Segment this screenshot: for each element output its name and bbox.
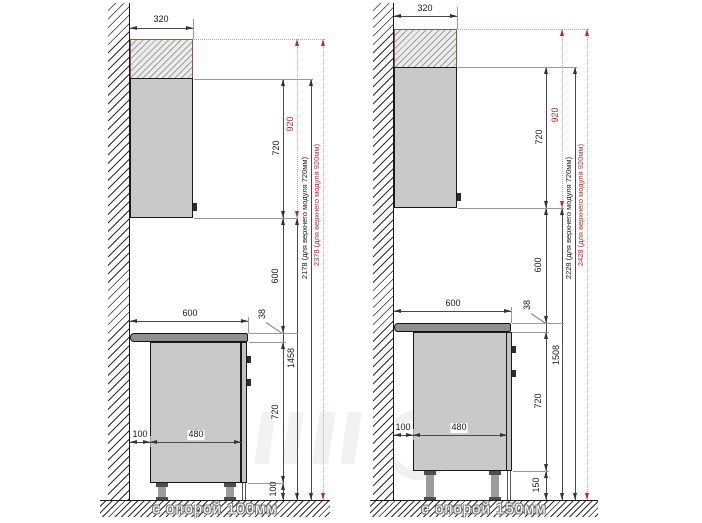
ext-line	[457, 7, 458, 29]
base-cabinet-body	[150, 342, 241, 483]
dim-back-gap: 100	[131, 430, 148, 440]
door-bottom-edge	[242, 483, 246, 500]
dim-wall-gap: 600	[534, 256, 544, 273]
base-cabinet-door	[241, 342, 247, 483]
upper-cabinet-handle	[193, 203, 197, 211]
arrow	[544, 316, 548, 323]
dim-line-alt	[562, 29, 563, 208]
ext-line	[512, 332, 549, 333]
arrow	[130, 440, 137, 444]
ext-line	[194, 79, 313, 80]
wall-hatch	[108, 3, 130, 500]
dim-line	[546, 208, 547, 323]
dim-base-depth: 480	[187, 430, 204, 440]
floor-label: с опорой 100мм	[152, 501, 277, 518]
ext-line	[193, 19, 194, 39]
dim-upper-height: 720	[272, 139, 282, 156]
arrow	[585, 29, 589, 36]
drawer-knob	[247, 379, 251, 386]
arrow	[281, 483, 285, 490]
dim-floor-to-upper: 1458	[287, 347, 297, 369]
arrow	[143, 440, 150, 444]
leader-line	[266, 322, 282, 333]
dim-base-height: 720	[534, 392, 544, 409]
dim-line-upper-depth	[394, 16, 457, 17]
arrow	[560, 29, 564, 36]
dim-countertop-thickness: 38	[523, 299, 533, 311]
dim-upper-height-alt: 920	[551, 106, 561, 123]
arrow	[406, 433, 413, 437]
arrow	[413, 433, 420, 437]
cabinet-leg-front	[489, 471, 501, 500]
ext-line	[248, 483, 284, 484]
dim-line	[562, 208, 563, 500]
arrow	[394, 14, 401, 18]
arrow	[321, 493, 325, 500]
arrow	[560, 493, 564, 500]
dim-base-depth: 480	[450, 423, 467, 433]
dim-total-alt: 2378 (для верхнего модуля 920мм)	[313, 143, 321, 267]
floor-label: с опорой 150мм	[421, 501, 546, 518]
dim-line	[546, 323, 547, 332]
dim-line-total	[575, 67, 576, 500]
cabinet-leg-back	[156, 483, 168, 500]
arrow	[500, 433, 507, 437]
arrow	[544, 332, 548, 339]
cabinet-leg-back	[424, 471, 436, 500]
arrow	[295, 211, 299, 218]
dim-line-total-alt	[323, 39, 324, 500]
ext-line-red	[194, 39, 325, 40]
drawer-knob	[512, 346, 516, 353]
ext-line	[512, 323, 564, 324]
arrow	[234, 440, 241, 444]
dim-countertop-width: 600	[181, 309, 198, 319]
upper-module-extension-hatch	[130, 39, 193, 79]
upper-cabinet	[394, 67, 457, 208]
arrow	[573, 67, 577, 74]
ext-line	[458, 208, 564, 209]
arrow	[394, 309, 401, 313]
ext-line	[511, 307, 512, 323]
ext-line	[248, 317, 249, 333]
diagram-canvas: с опорой 100мм 320 600 38	[0, 0, 702, 523]
arrow	[544, 201, 548, 208]
dim-line-countertop-width	[130, 321, 248, 322]
dim-total-std: 2228 (для верхнего модуля 720мм)	[565, 156, 573, 280]
upper-cabinet	[130, 78, 193, 218]
arrow	[295, 493, 299, 500]
ext-line	[249, 333, 298, 334]
dim-line	[283, 218, 284, 333]
arrow	[281, 79, 285, 86]
arrow	[130, 319, 137, 323]
dim-upper-depth: 320	[152, 15, 169, 25]
dim-line-upper-depth	[130, 28, 193, 29]
arrow	[544, 464, 548, 471]
drawer-knob	[247, 356, 251, 363]
ext-line	[513, 471, 549, 472]
arrow	[585, 493, 589, 500]
arrow	[241, 319, 248, 323]
ext-line	[249, 342, 286, 343]
arrow	[281, 342, 285, 349]
dim-upper-height: 720	[535, 128, 545, 145]
arrow	[130, 26, 137, 30]
dim-line	[283, 333, 284, 342]
arrow	[544, 471, 548, 478]
dim-line	[546, 332, 547, 471]
arrow	[544, 493, 548, 500]
dim-line-countertop-width	[394, 311, 511, 312]
arrow	[309, 79, 313, 86]
upper-cabinet-handle	[457, 193, 461, 201]
dim-total-std: 2178 (для верхнего модуля 720мм)	[301, 156, 309, 280]
dim-line	[297, 218, 298, 500]
countertop	[130, 333, 248, 342]
arrow	[321, 39, 325, 46]
dim-wall-gap: 600	[271, 267, 281, 284]
dim-base-height: 720	[271, 403, 281, 420]
arrow	[281, 493, 285, 500]
arrow	[295, 218, 299, 225]
dim-leg-height: 150	[532, 476, 542, 493]
dim-line	[546, 67, 547, 208]
wall-hatch	[373, 3, 394, 500]
dim-line	[283, 342, 284, 483]
dim-upper-height-alt: 920	[286, 115, 296, 132]
dim-line	[283, 79, 284, 218]
ext-line	[194, 218, 298, 219]
arrow	[544, 208, 548, 215]
arrow	[281, 326, 285, 333]
door-bottom-edge	[507, 471, 511, 500]
ext-line	[458, 67, 577, 68]
arrow	[281, 211, 285, 218]
arrow	[309, 493, 313, 500]
arrow	[504, 309, 511, 313]
arrow	[295, 39, 299, 46]
dim-floor-to-upper: 1508	[552, 344, 562, 366]
arrow	[573, 493, 577, 500]
upper-module-extension-hatch	[394, 29, 457, 68]
arrow	[186, 26, 193, 30]
ext-line-red	[458, 29, 589, 30]
base-cabinet-body	[413, 332, 507, 471]
arrow	[281, 218, 285, 225]
dim-total-alt: 2428 (для верхнего модуля 920мм)	[577, 143, 585, 267]
cabinet-leg-front	[224, 483, 236, 500]
arrow	[544, 67, 548, 74]
arrow	[450, 14, 457, 18]
dim-line-total	[311, 79, 312, 500]
dim-line-total-alt	[587, 29, 588, 500]
arrow	[150, 440, 157, 444]
dim-countertop-width: 600	[444, 299, 461, 309]
drawer-knob	[512, 370, 516, 377]
countertop	[394, 323, 511, 332]
arrow	[281, 476, 285, 483]
dim-upper-depth: 320	[416, 4, 433, 14]
arrow	[394, 433, 401, 437]
dim-back-gap: 100	[394, 423, 411, 433]
dim-line-alt	[297, 39, 298, 218]
dim-countertop-thickness: 38	[258, 308, 268, 320]
